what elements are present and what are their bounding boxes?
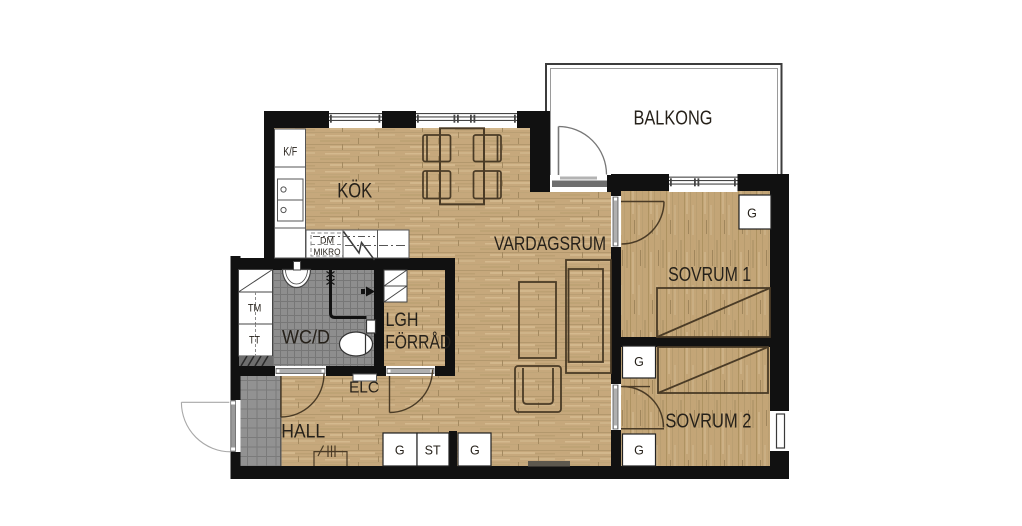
svg-text:G: G — [470, 444, 480, 458]
svg-text:G: G — [747, 207, 757, 221]
svg-text:ELC: ELC — [349, 380, 379, 397]
svg-text:TT: TT — [249, 335, 260, 347]
svg-text:ST: ST — [425, 444, 441, 458]
svg-text:LGH: LGH — [386, 310, 419, 331]
svg-text:K/F: K/F — [283, 147, 297, 159]
svg-text:VARDAGSRUM: VARDAGSRUM — [494, 234, 606, 255]
svg-text:BALKONG: BALKONG — [634, 107, 713, 130]
svg-text:G: G — [395, 444, 405, 458]
svg-text:MIKRO: MIKRO — [314, 247, 341, 257]
svg-text:WC/D: WC/D — [282, 328, 330, 349]
svg-text:G: G — [634, 355, 644, 369]
svg-text:HALL: HALL — [281, 421, 325, 443]
svg-text:TM: TM — [248, 303, 262, 315]
svg-text:G: G — [634, 444, 644, 458]
svg-text:SOVRUM 1: SOVRUM 1 — [668, 264, 751, 286]
svg-text:FÖRRÅD: FÖRRÅD — [385, 333, 451, 354]
svg-text:SOVRUM 2: SOVRUM 2 — [665, 411, 751, 433]
svg-text:KÖK: KÖK — [337, 180, 372, 203]
